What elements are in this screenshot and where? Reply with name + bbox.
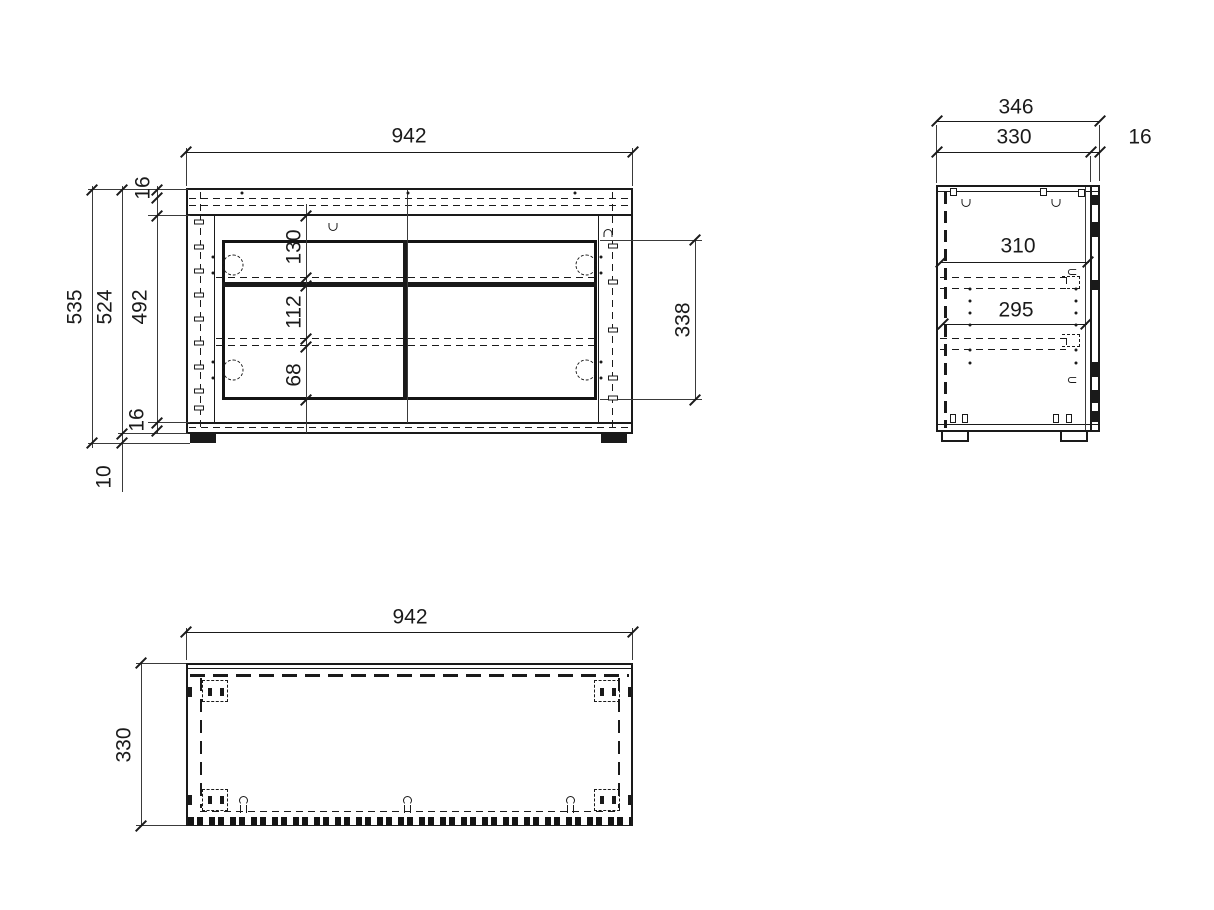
dowel-connector-icon	[194, 317, 204, 322]
dim-front-bottom-panel: 16	[127, 408, 148, 431]
panel-center-hidden-line	[200, 192, 201, 430]
corner-fitting-icon	[187, 795, 192, 805]
dowel-connector-icon	[194, 245, 204, 250]
dim-front-section-middle: 112	[284, 295, 305, 328]
extension-line	[1090, 156, 1091, 182]
shelf-hidden-line	[940, 288, 1066, 289]
hinge-cup-icon	[576, 255, 597, 276]
extension-line	[88, 443, 190, 444]
dim-front-total-height: 535	[65, 289, 86, 324]
cabinet-foot	[941, 432, 969, 442]
dim-plan-width: 942	[392, 607, 427, 628]
dim-front-feet-height: 10	[94, 465, 115, 488]
hinge-plate-icon	[1091, 411, 1098, 422]
foot-screw-icon	[208, 796, 212, 804]
drill-hole-icon	[212, 256, 215, 259]
shelf-pin-hole-icon	[969, 312, 972, 315]
panel-center-hidden-line	[612, 192, 613, 430]
foot-screw-icon	[208, 688, 212, 696]
hinge-plate-icon	[1091, 280, 1098, 290]
dim-side-inner-bottom: 295	[994, 300, 1037, 321]
panel-clip-icon	[239, 796, 248, 805]
dimension-line-plan-depth	[141, 663, 142, 826]
fitting-icon	[1040, 188, 1047, 196]
dimension-line-body-depth	[937, 152, 1100, 153]
foot-screw-icon	[600, 688, 604, 696]
center-line	[407, 190, 408, 423]
panel-clip-icon	[403, 796, 412, 805]
dim-front-section-top: 130	[284, 229, 305, 264]
cam-lock-icon	[604, 229, 613, 237]
corner-fitting-icon	[628, 795, 633, 805]
dowel-connector-icon	[194, 365, 204, 370]
shelf-pin-hole-icon	[1075, 324, 1078, 327]
foot-plate-hidden	[594, 680, 620, 702]
panel-clip-leg	[573, 805, 574, 813]
corner-fitting-icon	[628, 687, 633, 697]
foot-plate-hidden	[202, 680, 228, 702]
clip-icon	[1053, 414, 1059, 423]
extension-line	[136, 825, 186, 826]
front-edge-inner-line	[188, 668, 631, 669]
dowel-connector-icon	[194, 389, 204, 394]
dowel-connector-icon	[608, 280, 618, 285]
drill-hole-icon	[600, 361, 603, 364]
dim-side-inner-top: 310	[996, 236, 1039, 257]
back-panel-hidden-line	[944, 192, 947, 428]
dimension-line-total-depth	[937, 121, 1100, 122]
clamp-fitting-icon: ⊂	[1067, 264, 1078, 280]
drill-hole-icon	[574, 192, 577, 195]
rail-hidden-line	[940, 349, 1066, 350]
technical-drawing-canvas: 942 535 524 492 16 16 10 130 112 68 338	[0, 0, 1214, 910]
clip-icon	[1066, 414, 1072, 423]
dim-front-top-panel: 16	[133, 176, 154, 199]
dim-front-opening-height: 338	[673, 302, 694, 337]
foot-screw-icon	[220, 796, 224, 804]
front-panels-outline	[222, 240, 597, 400]
shelf-pin-hole-icon	[969, 288, 972, 291]
foot-screw-icon	[612, 688, 616, 696]
dimension-line-interior-height	[157, 186, 158, 434]
extension-line	[136, 663, 186, 664]
dowel-connector-icon	[194, 341, 204, 346]
shelf-pin-hole-icon	[1075, 288, 1078, 291]
dim-front-section-bottom: 68	[284, 363, 305, 386]
dowel-connector-icon	[194, 293, 204, 298]
hinge-plate-icon	[1091, 390, 1098, 403]
drill-hole-icon	[212, 272, 215, 275]
dim-side-front-panel: 16	[1128, 127, 1151, 148]
fitting-icon	[1078, 189, 1085, 197]
dimension-line-plan-width	[186, 632, 633, 633]
foot-screw-icon	[612, 796, 616, 804]
shelf-hidden-line	[940, 277, 1066, 278]
dimension-line-opening	[695, 240, 696, 400]
fitting-icon	[950, 188, 957, 196]
panel-clip-leg	[246, 805, 247, 813]
shelf-pin-hole-icon	[1075, 349, 1078, 352]
hidden-line	[189, 205, 630, 206]
hinge-cup-icon	[223, 255, 244, 276]
clip-icon	[962, 414, 968, 423]
left-panel-inner-line	[214, 216, 215, 423]
top-inner-line	[938, 191, 1098, 192]
carcass-front-line	[1085, 187, 1086, 430]
dowel-connector-icon	[194, 269, 204, 274]
panel-clip-icon	[566, 796, 575, 805]
hinge-plate-icon	[1091, 195, 1098, 205]
drill-hole-icon	[407, 192, 410, 195]
shelf-pin-hole-icon	[1075, 312, 1078, 315]
drill-hole-icon	[600, 377, 603, 380]
panel-clip-leg	[410, 805, 411, 813]
shelf-pin-hole-icon	[969, 300, 972, 303]
cabinet-foot	[601, 434, 627, 443]
cabinet-foot	[190, 434, 216, 443]
dowel-connector-icon	[194, 220, 204, 225]
hinge-cup-icon	[576, 360, 597, 381]
dowel-connector-icon	[608, 328, 618, 333]
hidden-line-heavy	[190, 674, 629, 677]
dimension-line-width	[186, 152, 633, 153]
foot-plate-hidden	[202, 789, 228, 811]
dim-front-interior-height: 492	[130, 289, 151, 324]
dimension-line-body-height	[122, 186, 123, 492]
panel-clip-leg	[567, 805, 568, 813]
hinge-plate-icon	[1091, 222, 1098, 237]
drill-hole-icon	[212, 361, 215, 364]
drill-hole-icon	[600, 272, 603, 275]
panel-clip-leg	[404, 805, 405, 813]
dim-front-body-height: 524	[95, 289, 116, 324]
front-divider-horizontal	[222, 282, 597, 287]
right-panel-inner-line	[598, 216, 599, 423]
shelf-pin-hole-icon	[969, 349, 972, 352]
shelf-pin-hole-icon	[1075, 300, 1078, 303]
dowel-connector-icon	[608, 376, 618, 381]
back-panel-edge-hatch	[188, 817, 631, 825]
dim-front-width: 942	[391, 126, 426, 147]
drill-hole-icon	[241, 192, 244, 195]
foot-screw-icon	[220, 688, 224, 696]
shelf-pin-hole-icon	[1075, 362, 1078, 365]
extension-line	[600, 240, 702, 241]
panel-clip-leg	[240, 805, 241, 813]
dim-side-total-depth: 346	[998, 97, 1033, 118]
drawer-slide-hidden	[1062, 334, 1080, 347]
dim-side-body-depth: 330	[996, 127, 1031, 148]
bottom-inner-line	[938, 424, 1098, 425]
drill-hole-icon	[212, 377, 215, 380]
dimension-line-inner-top	[940, 262, 1089, 263]
shelf-pin-hole-icon	[969, 324, 972, 327]
foot-screw-icon	[600, 796, 604, 804]
dowel-connector-icon	[194, 406, 204, 411]
dim-plan-depth: 330	[114, 727, 135, 762]
shelf-pin-hole-icon	[969, 362, 972, 365]
extension-line	[186, 148, 187, 186]
rail-hidden-line	[940, 338, 1066, 339]
cabinet-foot	[1060, 432, 1088, 442]
dowel-connector-icon	[608, 244, 618, 249]
hinge-plate-icon	[1091, 362, 1098, 377]
clip-icon	[950, 414, 956, 423]
foot-plate-hidden	[594, 789, 620, 811]
hidden-line	[189, 198, 630, 199]
corner-fitting-icon	[187, 687, 192, 697]
top-panel-line	[188, 214, 631, 216]
hidden-line	[189, 427, 630, 428]
dimension-line-inner-bottom	[942, 324, 1087, 325]
hinge-cup-icon	[223, 360, 244, 381]
bottom-panel-line	[188, 422, 631, 424]
dowel-connector-icon	[608, 396, 618, 401]
drill-hole-icon	[600, 256, 603, 259]
clamp-fitting-icon: ⊂	[1067, 372, 1078, 388]
